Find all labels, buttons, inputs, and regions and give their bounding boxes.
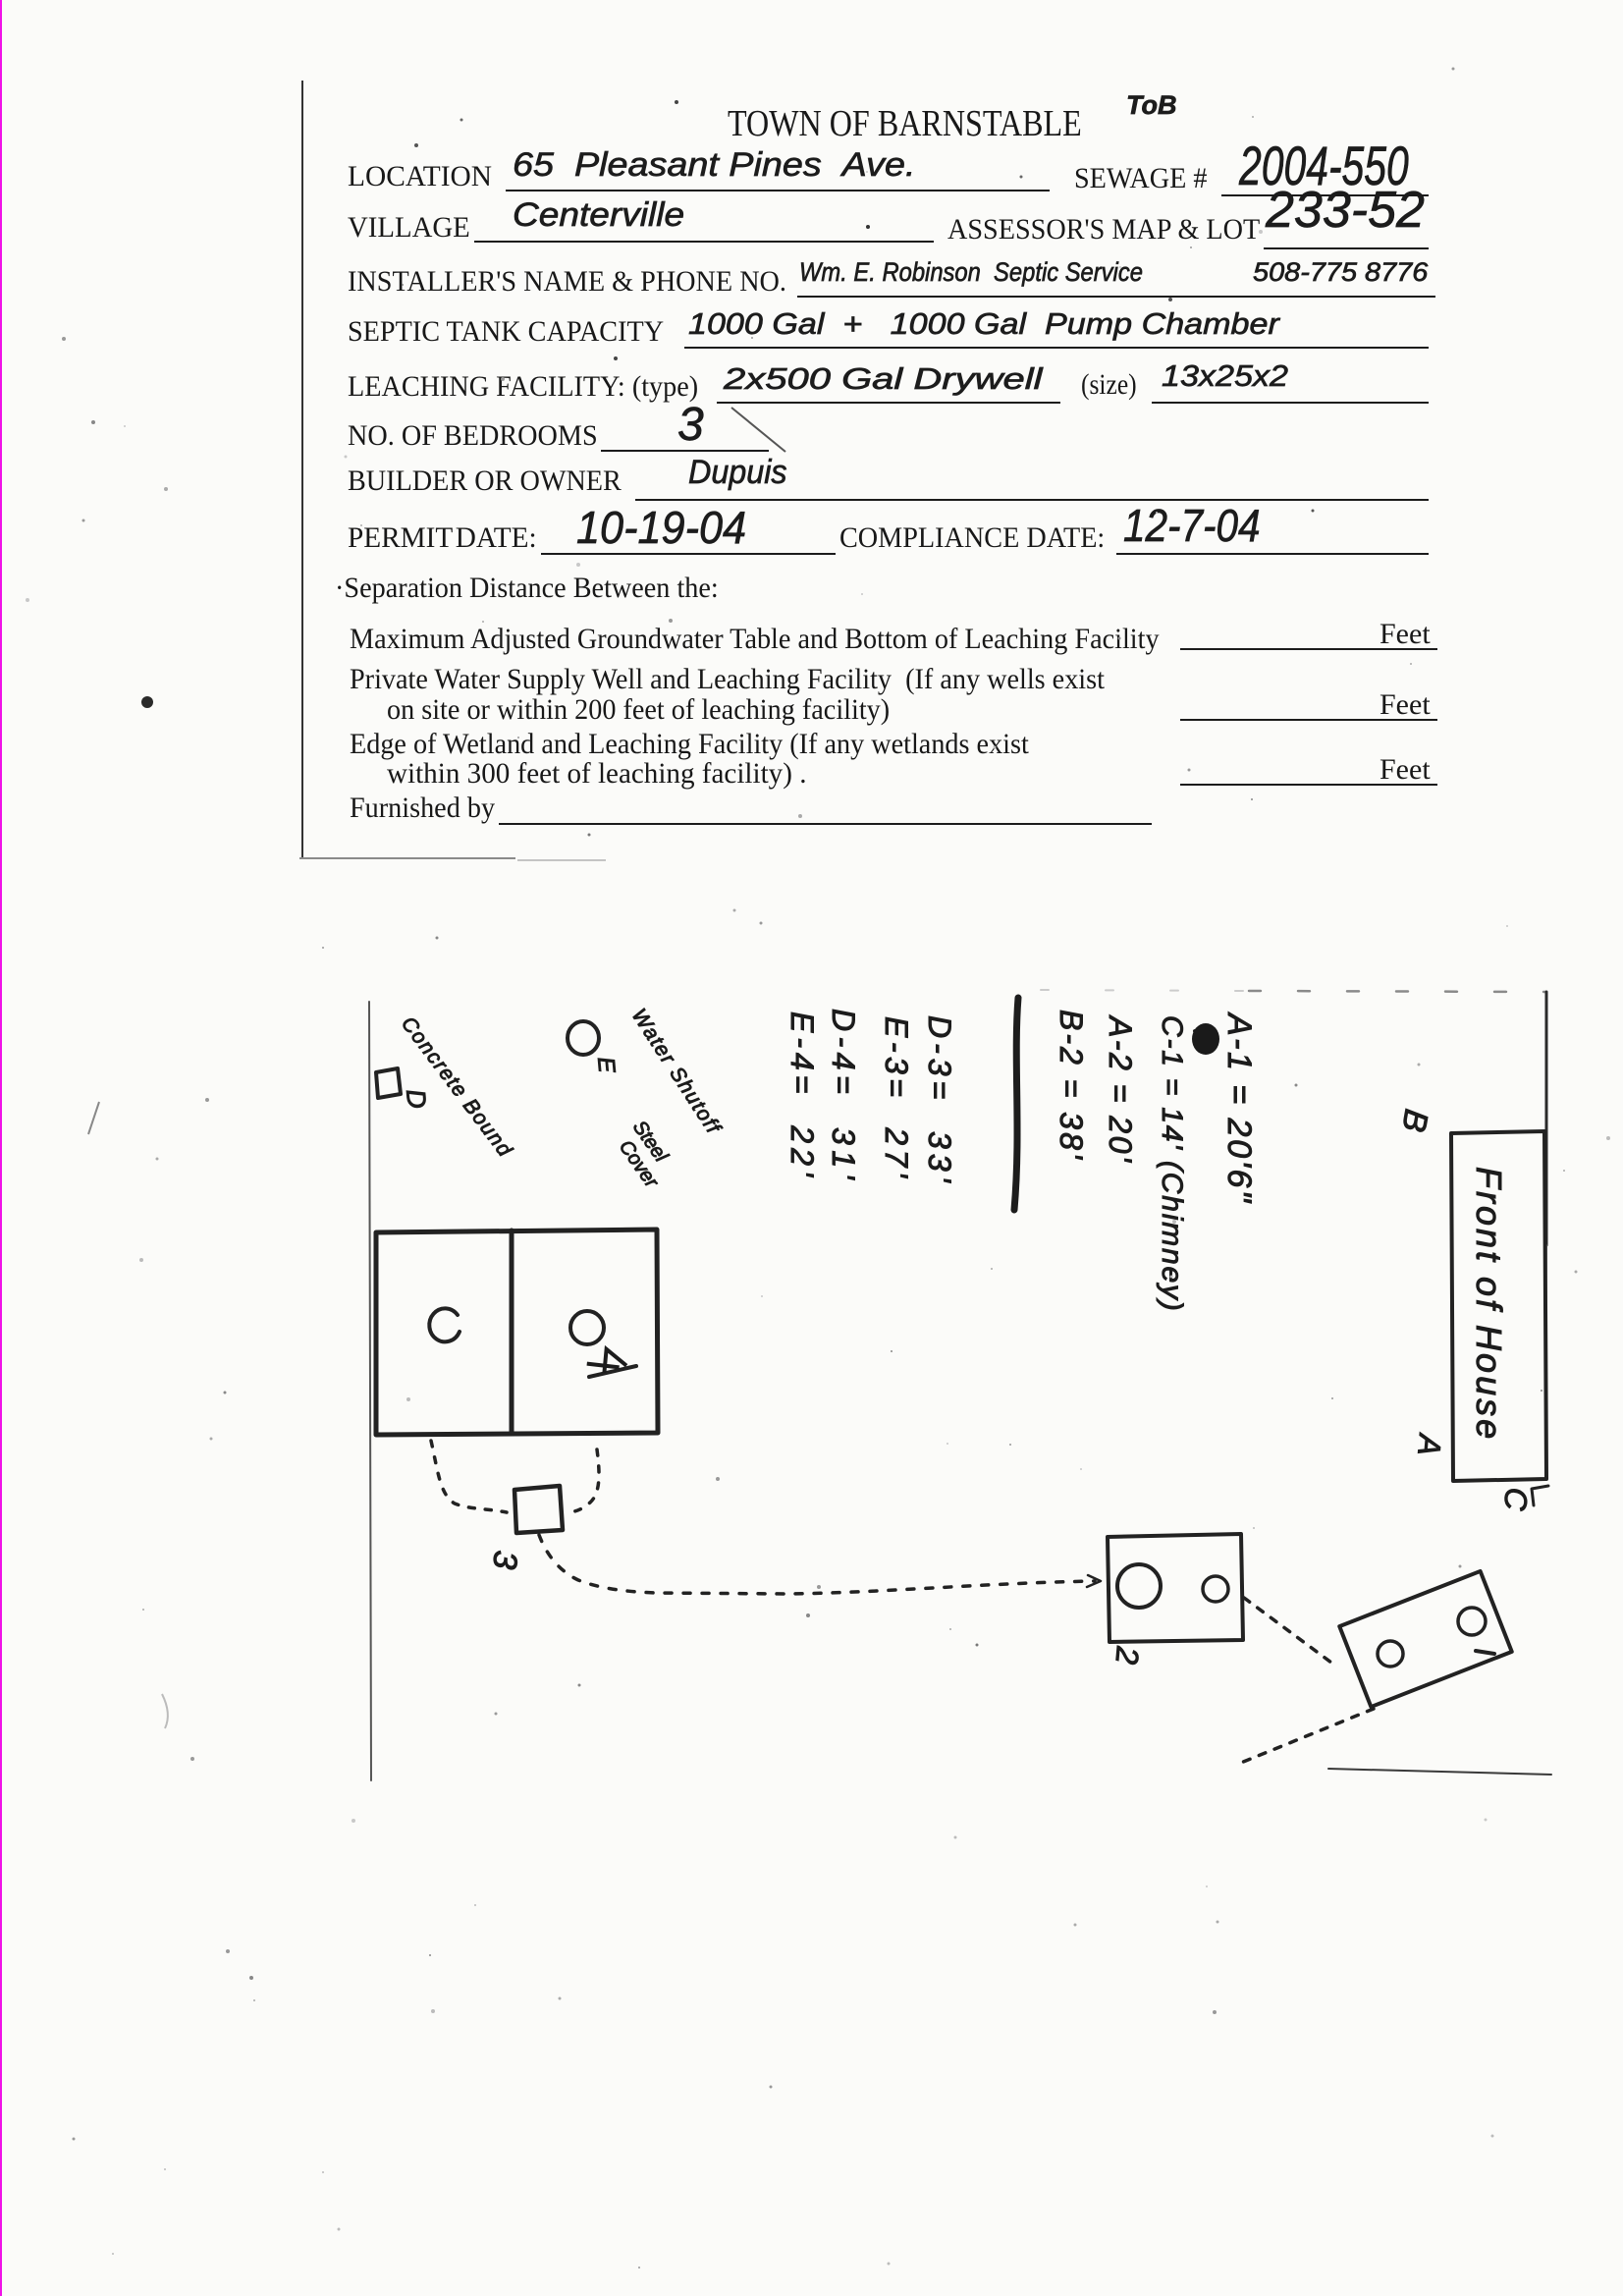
svg-text:D-4= 31': D-4= 31': [826, 1009, 861, 1184]
svg-text:E-4= 22': E-4= 22': [784, 1011, 820, 1181]
svg-text:2: 2: [1109, 1644, 1146, 1666]
svg-text:E: E: [592, 1056, 620, 1074]
svg-text:E-3= 27': E-3= 27': [879, 1016, 914, 1181]
svg-text:D: D: [401, 1088, 432, 1110]
svg-text:Front of House: Front of House: [1469, 1167, 1509, 1442]
svg-text:A-2 = 20': A-2 = 20': [1103, 1014, 1138, 1164]
svg-text:3: 3: [485, 1549, 524, 1570]
svg-text:A-1 = 20'6": A-1 = 20'6": [1220, 1011, 1258, 1204]
svg-text:C-1 = 14' (Chimney): C-1 = 14' (Chimney): [1156, 1015, 1188, 1313]
svg-text:C: C: [1497, 1486, 1535, 1512]
svg-text:A: A: [1411, 1431, 1448, 1456]
svg-text:D-3= 33': D-3= 33': [922, 1015, 957, 1187]
svg-text:B-2 = 38': B-2 = 38': [1054, 1010, 1089, 1162]
svg-text:Concrete Bound: Concrete Bound: [397, 1012, 516, 1162]
svg-text:B: B: [1394, 1107, 1434, 1135]
